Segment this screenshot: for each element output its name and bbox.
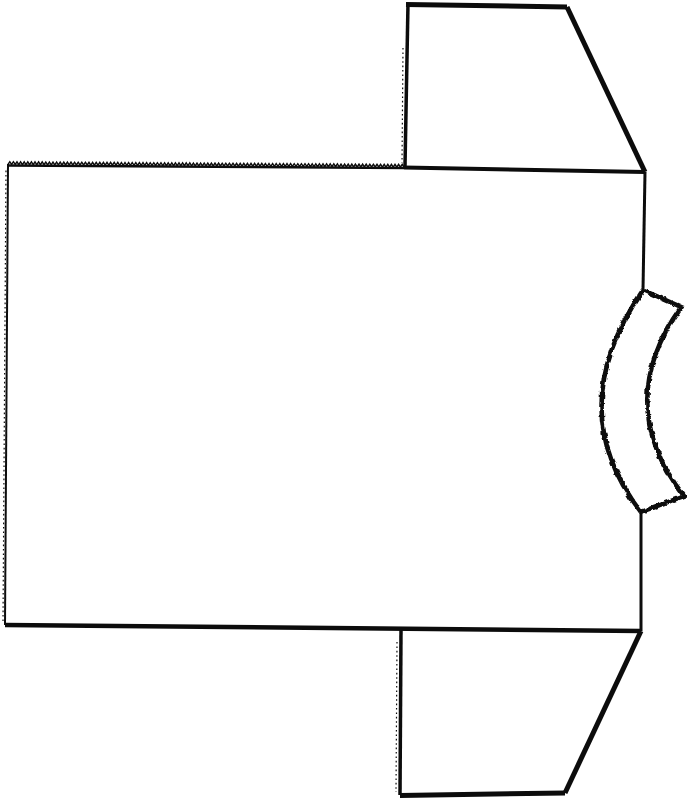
bottom-sleeve-left-edge-texture	[396, 642, 397, 792]
top-sleeve-top-edge	[406, 5, 567, 8]
neckband-crescent-outline	[601, 290, 684, 512]
bottom-sleeve-diagonal-edge	[565, 631, 641, 793]
bottom-sleeve-bottom-edge	[400, 793, 565, 796]
top-sleeve-diagonal-edge	[567, 7, 645, 172]
hem-bottom-edge	[5, 625, 641, 631]
pattern-diagram	[0, 0, 687, 800]
neckband	[601, 290, 684, 512]
bottom-sleeve	[396, 630, 641, 796]
pattern-canvas	[0, 0, 687, 800]
right-edge-upper	[643, 172, 645, 290]
body-panel	[3, 162, 645, 631]
armhole-top-edge	[404, 168, 645, 173]
top-sleeve-left-edge-texture	[402, 48, 403, 163]
bottom-sleeve-left-edge	[400, 630, 401, 795]
top-sleeve-left-edge	[405, 3, 408, 166]
top-sleeve	[402, 3, 645, 172]
shoulder-edge-base	[8, 166, 404, 169]
